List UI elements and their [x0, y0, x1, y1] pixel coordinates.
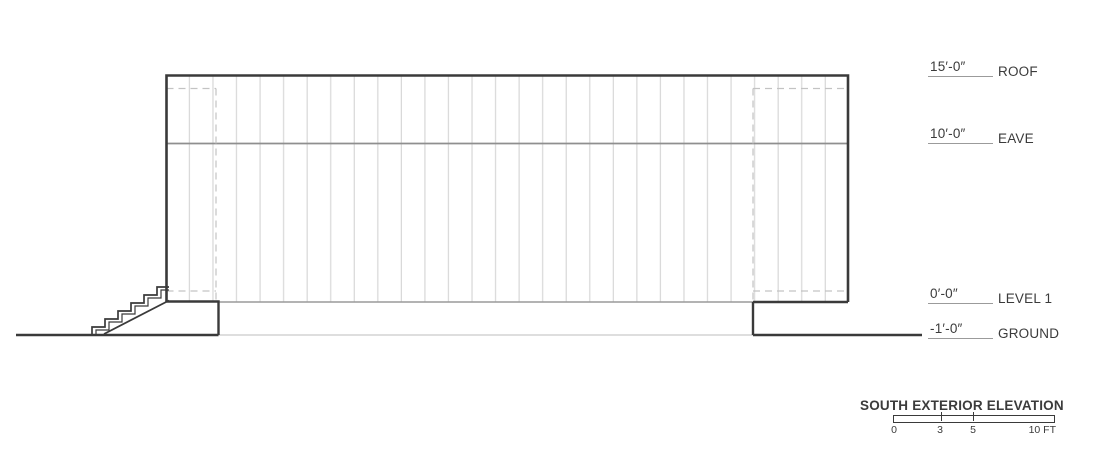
stair-steps-outer	[92, 287, 169, 335]
right-foundation	[753, 302, 848, 335]
marker-ground-label: GROUND	[998, 327, 1059, 341]
marker-level1-line	[928, 303, 993, 304]
marker-eave-label: EAVE	[998, 132, 1034, 146]
marker-ground-value: -1′-0″	[930, 321, 963, 336]
marker-eave-value: 10′-0″	[930, 126, 966, 141]
marker-roof-label: ROOF	[998, 65, 1038, 79]
scale-bar	[893, 415, 1055, 423]
drawing-title: SOUTH EXTERIOR ELEVATION	[860, 398, 1064, 413]
scale-tick-3	[941, 412, 942, 421]
marker-level1-value: 0′-0″	[930, 286, 958, 301]
siding-cladding	[167, 76, 849, 303]
left-foundation	[167, 302, 219, 336]
marker-roof-value: 15′-0″	[930, 59, 966, 74]
marker-level1-label: LEVEL 1	[998, 292, 1052, 306]
scale-label-5: 5	[968, 424, 978, 436]
scale-label-10: 10 FT	[1029, 424, 1056, 436]
scale-label-0: 0	[889, 424, 899, 436]
stair-steps-inner	[96, 290, 169, 335]
scale-label-3: 3	[935, 424, 945, 436]
scale-tick-5	[973, 412, 974, 421]
title-block: SOUTH EXTERIOR ELEVATION 0 3 5 10 FT	[860, 398, 1058, 443]
elevation-drawing: 15′-0″ ROOF 10′-0″ EAVE 0′-0″ LEVEL 1 -1…	[0, 0, 1100, 468]
marker-eave-line	[928, 143, 993, 144]
marker-ground-line	[928, 338, 993, 339]
marker-roof-line	[928, 76, 993, 77]
